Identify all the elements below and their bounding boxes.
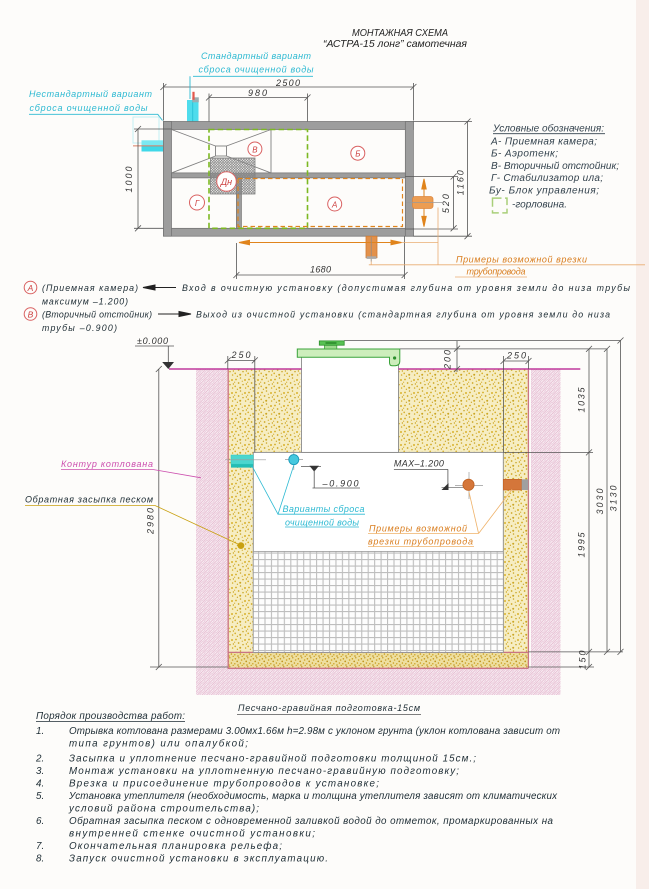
svg-text:Бу- Блок управления;: Бу- Блок управления; <box>489 186 599 197</box>
svg-text:Б- Аэротенк;: Б- Аэротенк; <box>491 149 558 160</box>
svg-text:8.: 8. <box>36 854 44 865</box>
svg-text:4.: 4. <box>36 779 44 790</box>
svg-text:внутренней стенке очистной уст: внутренней стенке очистной установки; <box>69 829 315 840</box>
svg-text:трубы –0.900): трубы –0.900) <box>42 323 117 333</box>
svg-text:Примеры возможной: Примеры возможной <box>369 524 467 534</box>
svg-text:Монтаж установки на уплотненну: Монтаж установки на уплотненную песчано-… <box>69 766 459 777</box>
svg-text:250: 250 <box>231 350 251 360</box>
svg-text:Отрывка котлована размерами 3.: Отрывка котлована размерами 3.00мх1.66м … <box>69 726 560 737</box>
svg-text:Нестандартный вариант: Нестандартный вариант <box>29 89 153 99</box>
svg-text:200: 200 <box>443 350 453 370</box>
svg-text:врезки трубопровода: врезки трубопровода <box>368 537 473 547</box>
svg-text:Запуск очистной установки в эк: Запуск очистной установки в эксплуатацию… <box>69 854 328 865</box>
svg-text:1995: 1995 <box>577 532 587 558</box>
svg-text:150: 150 <box>578 651 588 670</box>
svg-text:5.: 5. <box>36 791 44 802</box>
svg-text:Г: Г <box>195 199 200 208</box>
svg-text:(Приемная камера): (Приемная камера) <box>42 283 138 293</box>
svg-text:(Вторичный отстойник): (Вторичный отстойник) <box>42 310 152 320</box>
svg-text:сброса очищенной воды: сброса очищенной воды <box>199 65 314 75</box>
svg-text:Вход в очистную установку (доп: Вход в очистную установку (допустимая гл… <box>182 283 631 293</box>
svg-text:Обратная засыпка песком: Обратная засыпка песком <box>25 495 153 505</box>
svg-text:–0.900: –0.900 <box>322 479 359 489</box>
svg-text:Установка утеплителя (необходи: Установка утеплителя (необходимость, мар… <box>68 791 558 802</box>
svg-text:Врезка и присоединение трубопр: Врезка и присоединение трубопроводов к у… <box>69 779 379 790</box>
svg-text:Песчано-гравийная подготовка-1: Песчано-гравийная подготовка-15см <box>238 703 420 713</box>
svg-text:В: В <box>252 145 258 154</box>
svg-text:сброса очищенной воды: сброса очищенной воды <box>30 103 148 113</box>
svg-text:3130: 3130 <box>609 486 619 512</box>
svg-text:типа грунтов) или опалубкой;: типа грунтов) или опалубкой; <box>69 739 248 750</box>
svg-text:“АСТРА-15 лонг” самотечная: “АСТРА-15 лонг” самотечная <box>323 38 467 50</box>
svg-text:1160: 1160 <box>455 170 465 195</box>
svg-text:-горловина.: -горловина. <box>512 200 567 211</box>
svg-text:Г- Стабилизатор ила;: Г- Стабилизатор ила; <box>491 172 603 184</box>
svg-text:1000: 1000 <box>124 167 134 193</box>
svg-text:Б: Б <box>355 150 360 159</box>
svg-text:3030: 3030 <box>595 489 605 515</box>
svg-text:трубопровода: трубопровода <box>467 267 526 277</box>
svg-text:6.: 6. <box>36 816 44 827</box>
svg-text:1.: 1. <box>36 726 44 737</box>
svg-text:В- Вторичный отстойник;: В- Вторичный отстойник; <box>491 161 619 172</box>
svg-text:очищенной воды: очищенной воды <box>285 518 359 528</box>
svg-text:7.: 7. <box>36 841 44 852</box>
svg-text:Варианты сброса: Варианты сброса <box>283 504 365 514</box>
svg-text:Окончательная планировка релье: Окончательная планировка рельефа; <box>69 841 282 852</box>
svg-text:520: 520 <box>441 194 451 213</box>
svg-text:1035: 1035 <box>577 387 587 413</box>
svg-text:условий района строительства);: условий района строительства); <box>68 804 259 815</box>
svg-text:Стандартный вариант: Стандартный вариант <box>201 51 312 61</box>
svg-text:максимум –1.200): максимум –1.200) <box>42 297 128 307</box>
svg-text:250: 250 <box>506 351 526 361</box>
svg-text:1680: 1680 <box>310 265 331 275</box>
svg-text:Выход из очистной установки (с: Выход из очистной установки (стандартная… <box>196 310 610 320</box>
svg-text:3.: 3. <box>36 766 44 777</box>
svg-text:2.: 2. <box>35 754 44 765</box>
svg-text:±0.000: ±0.000 <box>137 336 168 346</box>
svg-text:Примеры возможной врезки: Примеры возможной врезки <box>456 255 587 265</box>
svg-text:А: А <box>27 283 34 293</box>
svg-text:Порядок производства работ:: Порядок производства работ: <box>36 711 185 722</box>
svg-text:Обратная засыпка песком с одно: Обратная засыпка песком с одновременной … <box>69 816 554 827</box>
svg-text:980: 980 <box>248 88 267 98</box>
svg-text:А: А <box>331 200 337 209</box>
svg-text:Контур котлована: Контур котлована <box>61 459 153 469</box>
svg-text:В: В <box>28 309 34 319</box>
svg-text:А- Приемная камера;: А- Приемная камера; <box>490 136 597 147</box>
svg-text:Условные обозначения:: Условные обозначения: <box>492 123 604 135</box>
svg-text:Засыпка и уплотнение песчано-г: Засыпка и уплотнение песчано-гравийной п… <box>69 754 476 765</box>
svg-text:Дн: Дн <box>220 177 232 187</box>
svg-text:MAX–1.200: MAX–1.200 <box>394 459 444 469</box>
